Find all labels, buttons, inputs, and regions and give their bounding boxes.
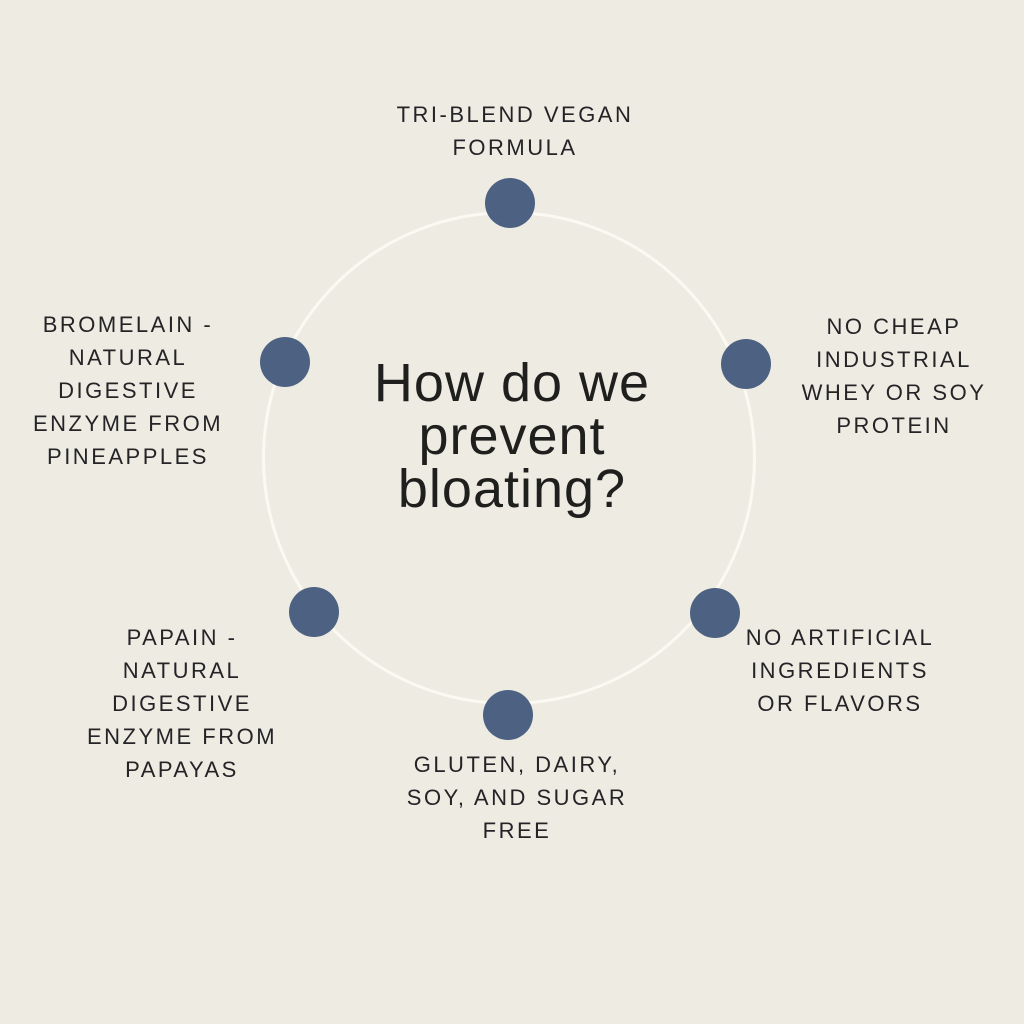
infographic-canvas: How do we prevent bloating? TRI-BLEND VE… (0, 0, 1024, 1024)
node-label-bromelain: BROMELAIN - NATURAL DIGESTIVE ENZYME FRO… (3, 308, 253, 473)
node-label-free-from: GLUTEN, DAIRY, SOY, AND SUGAR FREE (367, 748, 667, 847)
node-label-papain: PAPAIN - NATURAL DIGESTIVE ENZYME FROM P… (57, 621, 307, 786)
node-dot-free-from (483, 690, 533, 740)
node-dot-tri-blend (485, 178, 535, 228)
node-label-no-artificial: NO ARTIFICIAL INGREDIENTS OR FLAVORS (715, 621, 965, 720)
node-label-no-cheap-whey: NO CHEAP INDUSTRIAL WHEY OR SOY PROTEIN (769, 310, 1019, 442)
node-label-tri-blend: TRI-BLEND VEGAN FORMULA (345, 98, 685, 164)
center-question: How do we prevent bloating? (292, 357, 732, 516)
